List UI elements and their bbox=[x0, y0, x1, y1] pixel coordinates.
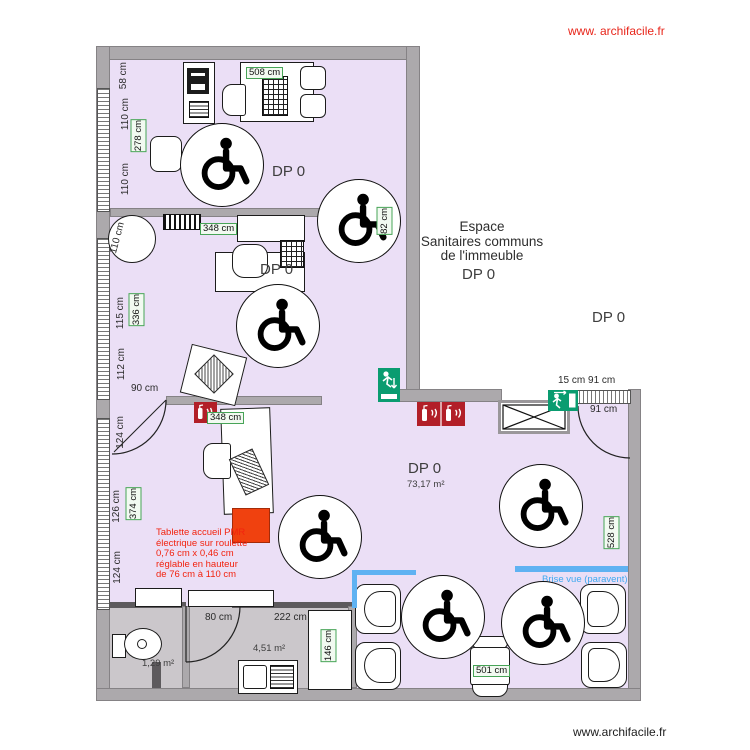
room-label-main: DP 0 bbox=[408, 460, 441, 477]
dim-label: 115 cm bbox=[116, 297, 126, 329]
side-board bbox=[237, 215, 305, 242]
fire-extinguisher-icon bbox=[417, 402, 465, 426]
dim-label: 348 cm bbox=[200, 223, 237, 235]
desk-monitor bbox=[262, 76, 288, 116]
outside-space-line3: de l'immeuble bbox=[408, 249, 556, 264]
dim-label: 146 cm bbox=[321, 629, 337, 662]
drainer bbox=[270, 665, 294, 689]
shelf-unit bbox=[163, 214, 201, 230]
pmr-annotation: Tablette accueil PMR électrique sur roul… bbox=[156, 528, 247, 581]
desk-chair bbox=[222, 84, 246, 116]
dim-label: 91 cm bbox=[590, 405, 617, 415]
outside-space-line2: Sanitaires communs bbox=[408, 235, 556, 250]
room-area-kitchen: 4,51 m² bbox=[253, 643, 285, 654]
sink-unit bbox=[238, 660, 298, 694]
wheelchair-icon bbox=[278, 495, 362, 579]
window-top-right bbox=[574, 390, 631, 404]
dim-label: 348 cm bbox=[207, 412, 244, 424]
dim-label: 15 cm 91 cm bbox=[558, 376, 615, 386]
small-chair bbox=[472, 684, 508, 697]
wall-main-top bbox=[398, 389, 502, 402]
paravent-left-vertical bbox=[352, 570, 357, 608]
dim-label: 222 cm bbox=[274, 613, 307, 623]
floor-plan: Brise vue (paravent) 58 cm 110 cm 278 cm… bbox=[0, 0, 750, 750]
dim-label: 124 cm bbox=[116, 416, 126, 449]
armchair bbox=[581, 642, 627, 688]
dim-label: 112 cm bbox=[117, 348, 127, 380]
window-left-1 bbox=[97, 88, 110, 212]
paravent-right bbox=[515, 566, 628, 572]
room-area-main: 73,17 m² bbox=[407, 479, 445, 490]
dim-label: 110 cm bbox=[121, 98, 131, 130]
emergency-exit-icon bbox=[548, 390, 578, 411]
room-area-wc: 1,29 m² bbox=[142, 658, 174, 669]
watermark-bottom: www.archifacile.fr bbox=[573, 725, 666, 739]
dim-label: 110 cm bbox=[121, 163, 131, 195]
window-left-3 bbox=[97, 418, 110, 610]
dim-label: 126 cm bbox=[112, 490, 122, 523]
watermark-top: www. archifacile.fr bbox=[568, 24, 665, 38]
wheelchair-icon bbox=[499, 464, 583, 548]
pmr-annotation-line: Tablette accueil PMR bbox=[156, 528, 247, 539]
paravent-left-horizontal bbox=[352, 570, 416, 575]
dim-label: 528 cm bbox=[604, 516, 620, 549]
emergency-exit-icon bbox=[378, 368, 400, 402]
printer-cabinet bbox=[183, 62, 215, 124]
pmr-annotation-line: de 76 cm à 110 cm bbox=[156, 570, 247, 581]
dim-label: 501 cm bbox=[473, 665, 510, 677]
dim-label: 374 cm bbox=[126, 487, 142, 520]
dim-label: 278 cm bbox=[131, 119, 147, 152]
wall-top bbox=[96, 46, 420, 60]
dim-label: 336 cm bbox=[129, 293, 145, 326]
armchair bbox=[355, 642, 401, 690]
outside-dp-label-2: DP 0 bbox=[592, 309, 625, 326]
dim-label: 124 cm bbox=[113, 551, 123, 584]
low-cabinet bbox=[188, 590, 274, 607]
window-left-2 bbox=[97, 238, 110, 400]
wheelchair-icon bbox=[401, 575, 485, 659]
dim-label: 90 cm bbox=[131, 384, 158, 394]
dim-label: 80 cm bbox=[205, 613, 232, 623]
room-label-office-top: DP 0 bbox=[272, 163, 305, 180]
printer-icon bbox=[187, 68, 209, 94]
dim-label: 58 cm bbox=[119, 62, 129, 89]
room-label-office-mid: DP 0 bbox=[260, 261, 293, 278]
side-chair bbox=[150, 136, 182, 172]
dim-label: 82 cm bbox=[377, 207, 393, 235]
outside-space-line1: Espace bbox=[408, 220, 556, 235]
sink-basin bbox=[243, 665, 267, 689]
wheelchair-icon bbox=[501, 581, 585, 665]
pmr-annotation-line: 0,76 cm x 0,46 cm bbox=[156, 549, 247, 560]
armchair bbox=[355, 584, 401, 634]
wall-divider-2 bbox=[166, 396, 322, 405]
reception-chair bbox=[203, 443, 231, 479]
dim-label: 508 cm bbox=[246, 67, 283, 79]
outside-space-label: Espace Sanitaires communs de l'immeuble bbox=[408, 220, 556, 264]
desk-chair bbox=[300, 66, 326, 90]
armchair bbox=[580, 584, 626, 634]
toilet-bowl bbox=[124, 628, 162, 660]
low-cabinet bbox=[135, 588, 182, 607]
desk-chair bbox=[300, 94, 326, 118]
wheelchair-icon bbox=[236, 284, 320, 368]
wheelchair-icon bbox=[180, 123, 264, 207]
outside-dp-label-1: DP 0 bbox=[462, 266, 495, 283]
